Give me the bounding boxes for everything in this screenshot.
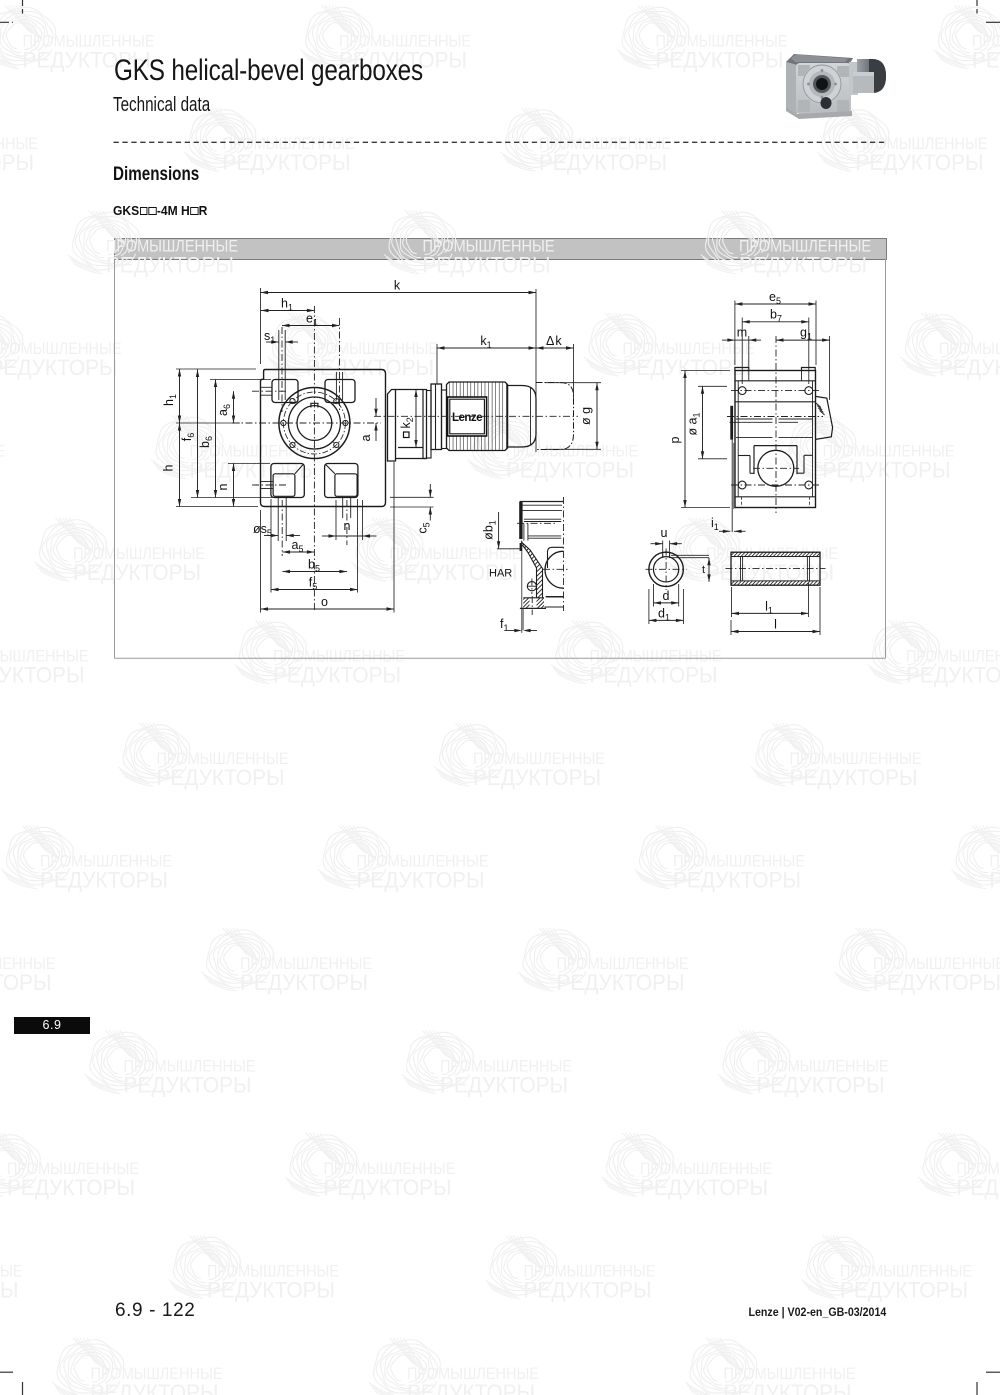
svg-text:l: l [774,618,777,632]
svg-text:ø a1: ø a1 [686,412,702,435]
svg-text:b7: b7 [770,308,782,324]
svg-text:h1: h1 [281,297,293,313]
svg-text:HAR: HAR [489,568,512,580]
svg-text:b6: b6 [198,436,214,448]
svg-text:s1: s1 [264,329,275,345]
svg-text:a5: a5 [292,538,304,554]
svg-text:o: o [321,595,328,609]
svg-text:d1: d1 [658,607,670,623]
svg-text:k: k [394,279,401,293]
svg-text:p: p [668,436,682,443]
svg-text:h: h [162,464,176,471]
svg-text:Lenze: Lenze [452,412,482,424]
svg-text:g1: g1 [800,326,812,342]
svg-text:l1: l1 [765,600,773,616]
svg-text:e5: e5 [769,290,781,306]
svg-text:e1: e1 [306,312,318,328]
svg-text:a: a [359,434,373,441]
svg-text:t: t [702,564,705,576]
svg-text:f1: f1 [500,617,509,633]
svg-text:øs5: øs5 [253,522,272,538]
svg-text:øb1: øb1 [482,520,498,540]
svg-text:u: u [661,526,668,540]
svg-text:b5: b5 [308,558,320,574]
svg-text:k2: k2 [399,417,415,428]
svg-text:i1: i1 [711,516,719,532]
svg-text:f6: f6 [180,433,196,442]
svg-text:c5: c5 [416,522,432,533]
svg-text:n: n [216,483,230,490]
svg-text:n: n [344,519,351,533]
svg-text:d: d [663,589,670,603]
svg-text:f5: f5 [309,576,318,592]
svg-text:a6: a6 [216,404,232,416]
svg-text:k1: k1 [480,334,491,350]
svg-text:m: m [737,326,747,340]
svg-text:h1: h1 [162,394,178,406]
svg-text:Δk: Δk [546,334,562,348]
svg-text:ø g: ø g [579,407,593,425]
